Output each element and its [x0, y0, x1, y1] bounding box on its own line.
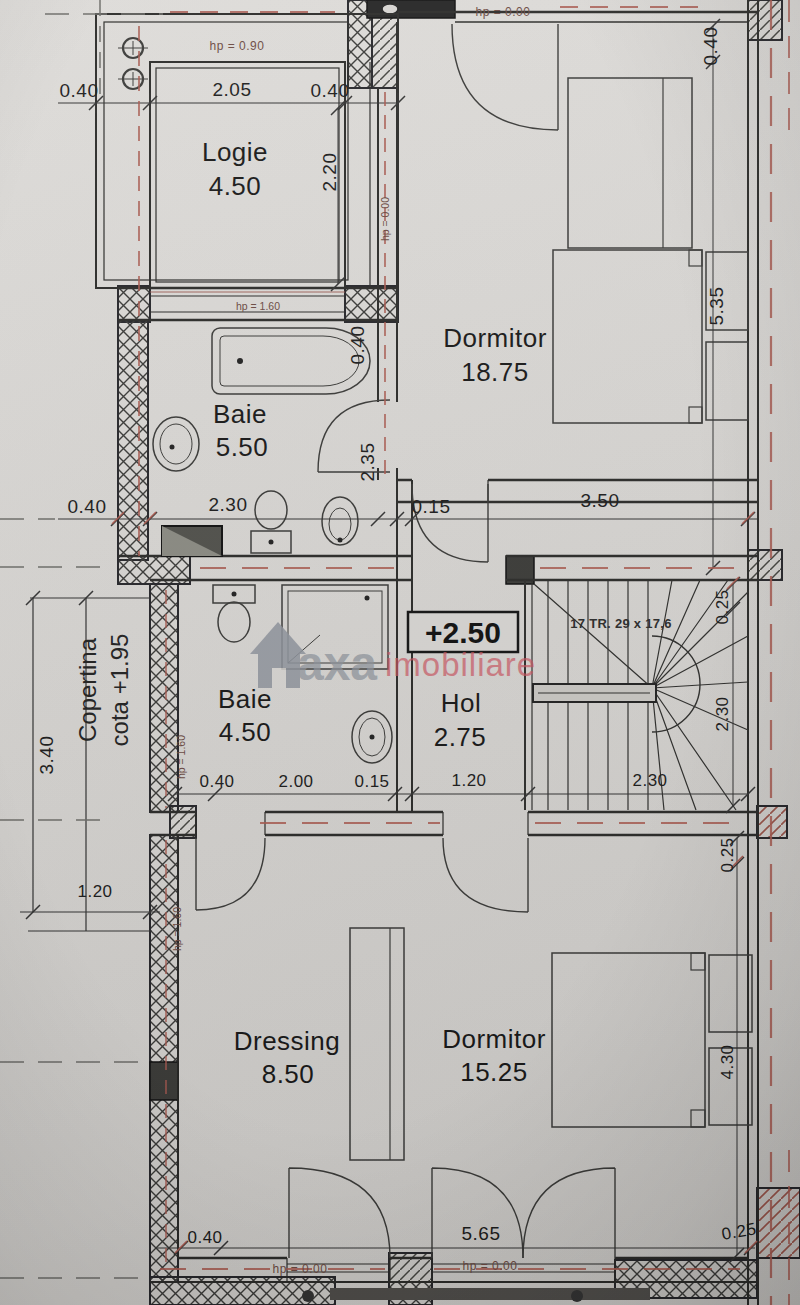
bed-1	[553, 250, 748, 423]
sink	[153, 417, 199, 471]
room-area-hol: 2.75	[434, 722, 487, 752]
room-area-dormitor-1: 18.75	[461, 357, 529, 387]
floor-plan-photo: hp = 0.90 hp = 0.00 hp = 1.60 hp = 0.00 …	[0, 0, 800, 1305]
vent-symbols	[118, 38, 148, 89]
dim-label-vertical: 0.40	[700, 27, 721, 66]
sink-2	[352, 711, 392, 763]
washer-block	[162, 526, 222, 556]
room-label-dormitor-1: Dormitor	[443, 323, 547, 353]
room-label-baie-1: Baie	[213, 399, 267, 429]
dim-label: 0.40	[68, 496, 107, 517]
level-marker: +2.50	[425, 616, 501, 649]
hp-label: hp = 1.60	[236, 300, 280, 312]
dim-label-vertical: 0.25	[713, 589, 732, 624]
hp-label-vertical: hp = 1.60	[171, 907, 183, 951]
room-label-logie: Logie	[202, 137, 268, 167]
hp-label: hp = 0.00	[463, 1259, 518, 1273]
stairs-label: 17 TR. 29 x 17,6	[570, 616, 672, 631]
toilet-2	[213, 585, 255, 642]
room-area-baie-1: 5.50	[216, 432, 269, 462]
fixtures	[118, 38, 752, 1160]
dim-label: 0.40	[311, 80, 350, 101]
dim-label: 0.40	[60, 80, 99, 101]
hp-label-vertical: hp = 1.60	[175, 735, 187, 779]
watermark-text-red: imobiliare	[385, 646, 536, 683]
dim-label: 2.00	[278, 772, 313, 791]
room-label-hol: Hol	[441, 688, 482, 718]
dim-label: 0.15	[354, 772, 389, 791]
copertina-label-1: Copertina	[74, 637, 101, 742]
dim-label: 3.50	[581, 490, 620, 511]
dim-label-vertical: 4.30	[718, 1044, 737, 1079]
room-area-dressing: 8.50	[262, 1059, 315, 1089]
dim-label: 0.25	[720, 1219, 758, 1244]
hp-label: hp = 0.00	[476, 5, 531, 19]
dim-label: 0.15	[412, 496, 451, 517]
dim-label-vertical: 0.40	[347, 326, 368, 365]
hp-label: hp = 0.00	[273, 1262, 328, 1276]
wardrobe-top	[568, 78, 692, 248]
dim-label: 0.40	[187, 1228, 222, 1247]
floor-plan-drawing: hp = 0.90 hp = 0.00 hp = 1.60 hp = 0.00 …	[0, 0, 800, 1305]
dim-label: 2.05	[213, 79, 252, 100]
dim-label-vertical: 0.25	[718, 837, 737, 872]
dim-label: 2.30	[209, 494, 248, 515]
dim-label: 2.30	[632, 771, 667, 790]
hp-label: hp = 0.90	[210, 39, 265, 53]
toilet	[251, 491, 291, 553]
dim-label-vertical: 2.35	[357, 443, 378, 482]
bed-2	[552, 953, 752, 1127]
dim-label: 1.20	[77, 882, 112, 901]
dim-label: 0.40	[199, 772, 234, 791]
bidet	[322, 497, 358, 545]
room-area-logie: 4.50	[209, 171, 262, 201]
room-area-baie-2: 4.50	[219, 717, 272, 747]
room-label-baie-2: Baie	[218, 684, 272, 714]
dim-label-vertical: 2.20	[319, 153, 340, 192]
dim-label-vertical: 3.40	[36, 736, 57, 775]
watermark-text-gray: axa	[297, 637, 377, 690]
wardrobe-dressing	[350, 928, 404, 1160]
room-label-dressing: Dressing	[234, 1026, 341, 1056]
dim-label: 1.20	[451, 771, 486, 790]
copertina-label-2: cota +1.95	[106, 634, 133, 747]
dim-label: 5.65	[462, 1223, 501, 1244]
room-area-dormitor-2: 15.25	[460, 1057, 528, 1087]
dim-label-vertical: 2.30	[713, 696, 732, 731]
room-label-dormitor-2: Dormitor	[442, 1024, 546, 1054]
hp-label-vertical: hp = 0.00	[379, 197, 391, 241]
dim-label-vertical: 5.35	[706, 287, 727, 326]
